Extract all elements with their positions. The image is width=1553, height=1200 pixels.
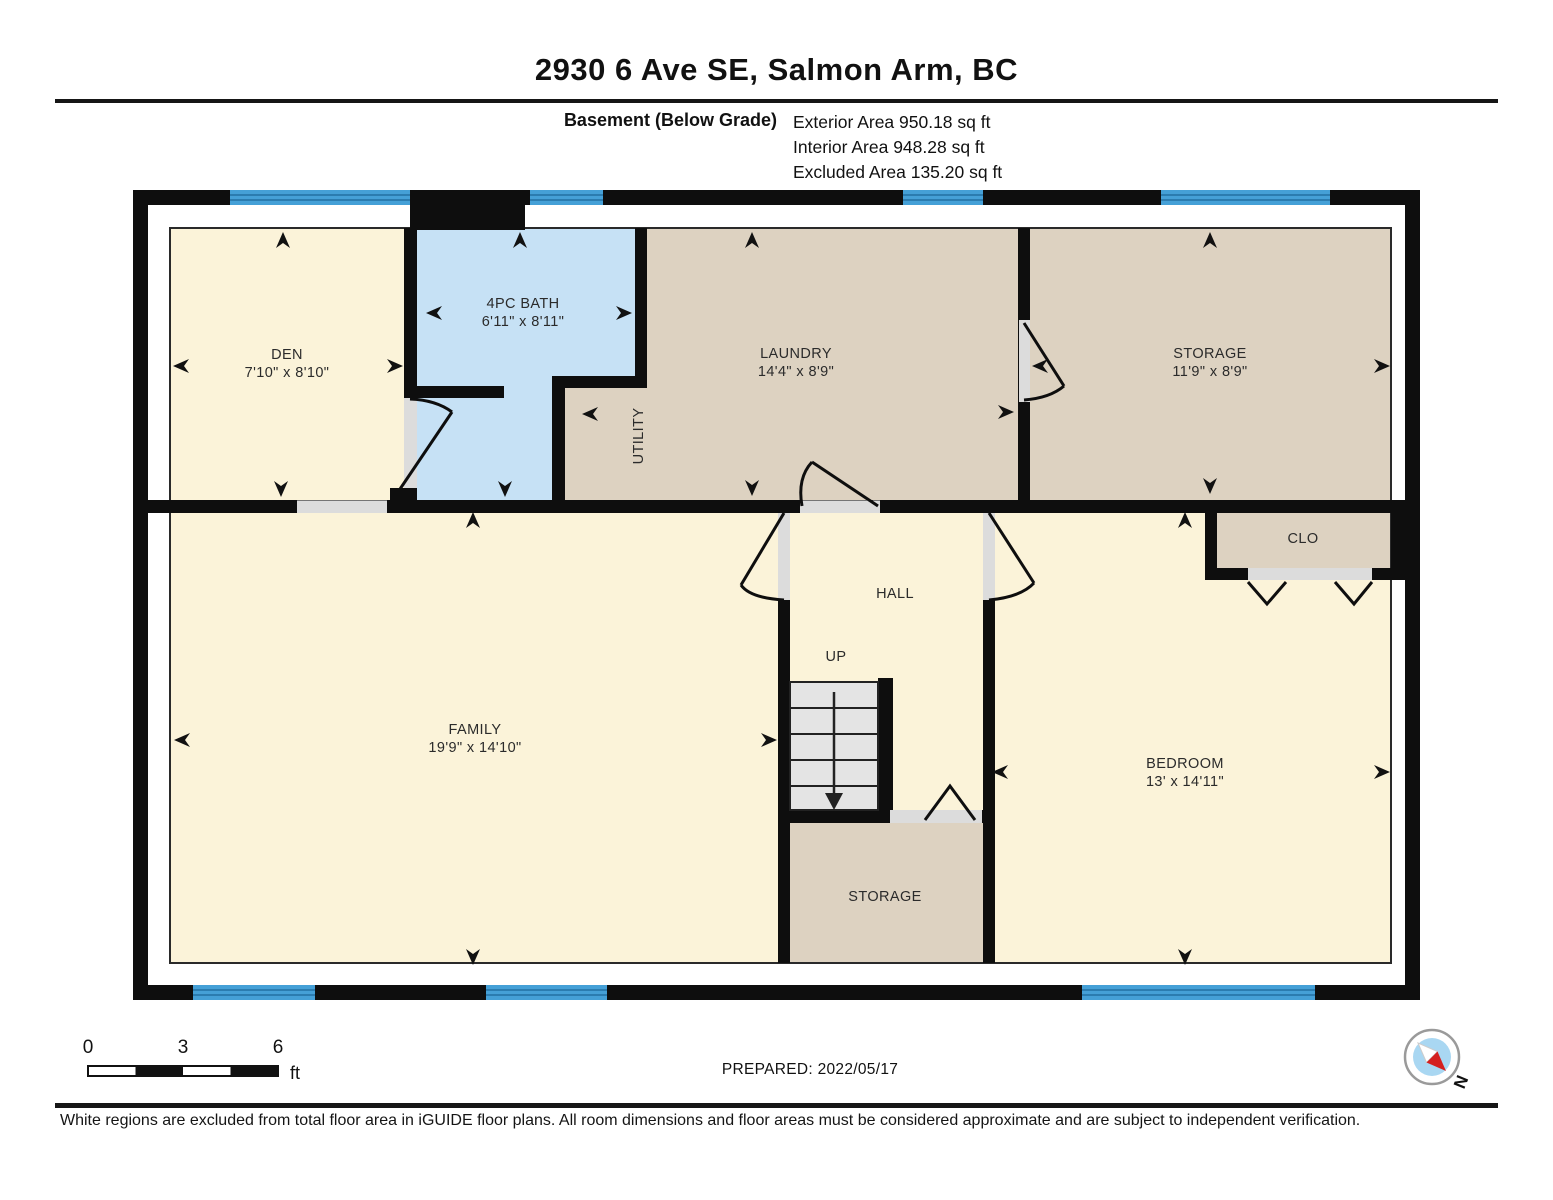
solid-block [410,190,525,230]
room-den-area [170,228,404,500]
window-laundry [903,190,983,205]
window-storage-top [1161,190,1330,205]
opening-hall-family-door [778,513,790,600]
outer-wall-left [133,190,148,1000]
wall-stairs-right [878,678,893,823]
closet-label: CLO [1287,531,1318,547]
laundry-dims: 14'4" x 8'9" [758,364,834,380]
room-storage-bottom-area [778,810,995,963]
wall-utility-left [552,382,565,500]
bedroom-dims: 13' x 14'11" [1146,774,1224,790]
bath-dims: 6'11" x 8'11" [482,314,565,330]
stairs-up-label: UP [826,649,847,665]
footer-divider-line [55,1103,1498,1108]
wall-bath-laundry [635,228,647,388]
opening-laundry-hall [800,501,880,514]
window-bedroom [1082,985,1315,1000]
opening-closet-doors [1248,568,1372,580]
window-den [230,190,410,205]
storage-top-dims: 11'9" x 8'9" [1172,364,1247,380]
hall-label: HALL [876,586,914,602]
prepared-date: PREPARED: 2022/05/17 [560,1061,1060,1079]
scale-unit: ft [290,1063,300,1083]
wall-den-bath [404,228,417,398]
wall-utility-top [552,376,647,388]
window-family-right [486,985,607,1000]
den-dims: 7'10" x 8'10" [245,365,330,381]
window-bath [530,190,603,205]
stairs [790,682,878,810]
laundry-label: LAUNDRY [760,346,832,362]
scale-tick-6: 6 [273,1037,284,1058]
disclaimer-text: White regions are excluded from total fl… [60,1112,1510,1130]
opening-bedroom-door [983,513,995,600]
opening-den-family [297,501,387,514]
scale-tick-3: 3 [178,1037,189,1058]
wall-bath-partition [404,386,504,398]
bath-label: 4PC BATH [486,296,559,312]
den-label: DEN [271,347,303,363]
compass: N [1405,1030,1472,1091]
outer-wall-right [1405,190,1420,1000]
scale-bar: 0 3 6 ft [83,1037,300,1083]
storage-top-label: STORAGE [1173,346,1246,362]
wall-bath-hinge-stub [390,488,417,513]
wall-closet-right [1391,500,1405,580]
bedroom-label: BEDROOM [1146,756,1224,772]
family-dims: 19'9" x 14'10" [428,740,521,756]
scale-tick-0: 0 [83,1037,94,1058]
utility-label: UTILITY [631,408,647,465]
family-label: FAMILY [449,722,502,738]
storage-bottom-label: STORAGE [848,889,921,905]
floorplan-canvas: DEN 7'10" x 8'10" 4PC BATH 6'11" x 8'11"… [0,0,1553,1200]
window-family-left [193,985,315,1000]
